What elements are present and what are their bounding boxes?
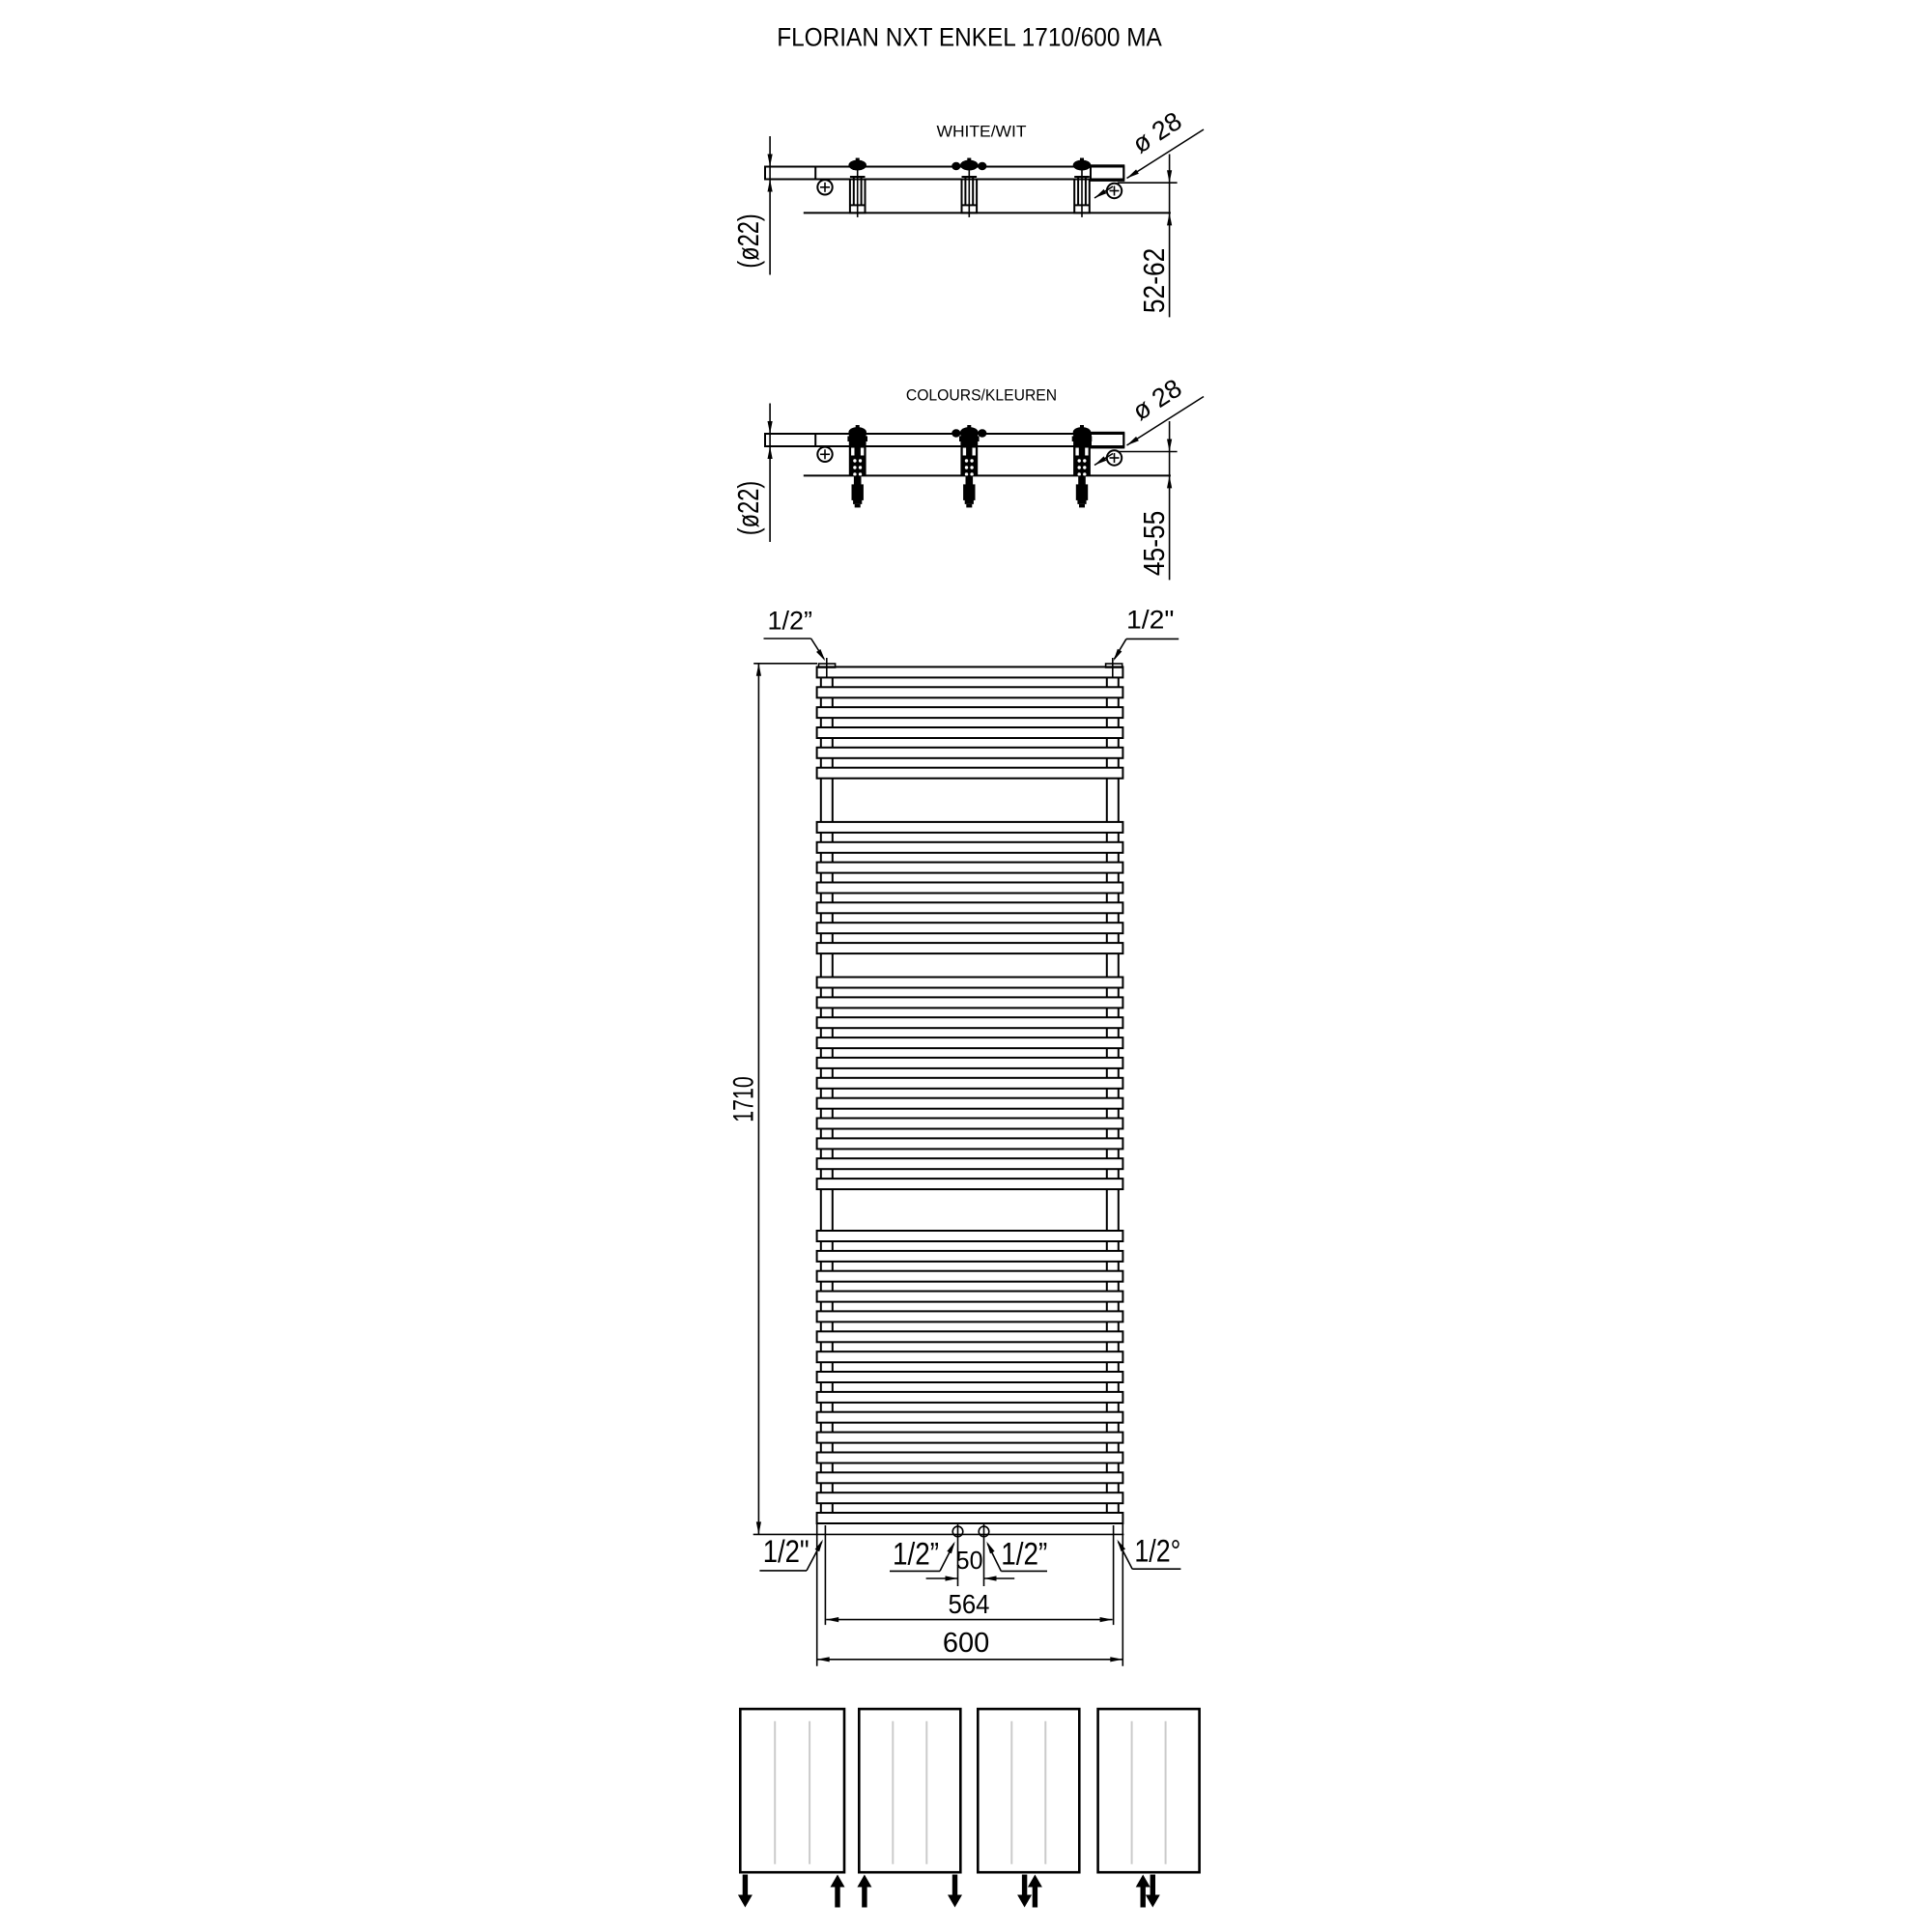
svg-text:1/2”: 1/2” (1001, 1538, 1047, 1572)
svg-text:45-55: 45-55 (1138, 511, 1171, 576)
svg-text:564: 564 (949, 1589, 990, 1619)
svg-text:600: 600 (943, 1628, 989, 1659)
svg-text:1/2": 1/2" (763, 1535, 810, 1569)
svg-text:50: 50 (956, 1548, 983, 1575)
svg-text:WHITE/WIT: WHITE/WIT (937, 122, 1027, 141)
svg-text:(ø22): (ø22) (731, 481, 765, 535)
svg-text:1710: 1710 (726, 1076, 760, 1122)
svg-text:52-62: 52-62 (1138, 248, 1171, 313)
svg-text:1/2”: 1/2” (768, 606, 813, 635)
svg-text:1/2": 1/2" (1126, 605, 1174, 634)
svg-text:COLOURS/KLEUREN: COLOURS/KLEUREN (906, 386, 1057, 405)
svg-text:FLORIAN NXT ENKEL 1710/600 MA: FLORIAN NXT ENKEL 1710/600 MA (777, 23, 1162, 51)
svg-text:(ø22): (ø22) (731, 213, 765, 268)
svg-text:1/2°: 1/2° (1134, 1534, 1180, 1569)
svg-text:1/2”: 1/2” (893, 1538, 939, 1572)
